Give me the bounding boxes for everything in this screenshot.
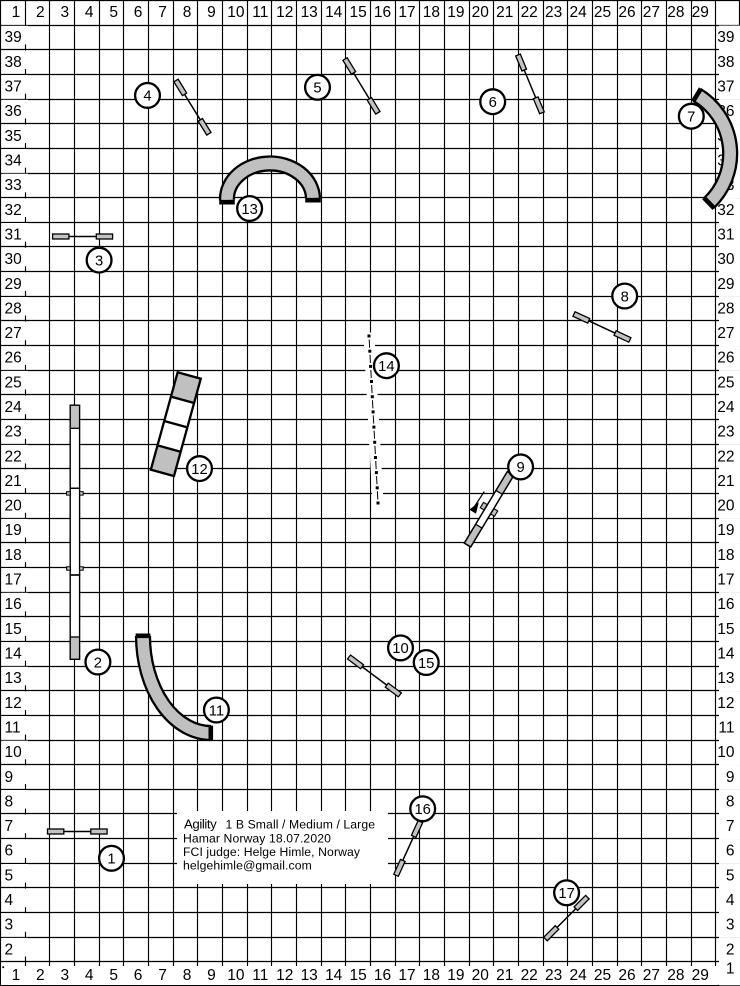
svg-text:22: 22 <box>521 967 538 984</box>
svg-text:20: 20 <box>472 4 490 21</box>
svg-text:18: 18 <box>717 547 734 564</box>
svg-text:23: 23 <box>545 967 562 984</box>
svg-text:29: 29 <box>692 967 709 984</box>
svg-text:21: 21 <box>496 967 513 984</box>
svg-text:39: 39 <box>5 29 22 46</box>
svg-text:10: 10 <box>227 4 245 21</box>
svg-text:16: 16 <box>414 802 430 818</box>
svg-text:27: 27 <box>643 967 660 984</box>
svg-text:10: 10 <box>392 641 408 657</box>
svg-text:7: 7 <box>5 818 14 835</box>
svg-text:38: 38 <box>717 54 734 71</box>
svg-text:1 B Small / Medium / Large: 1 B Small / Medium / Large <box>226 818 376 832</box>
svg-text:31: 31 <box>5 226 22 243</box>
svg-text:17: 17 <box>558 886 574 902</box>
svg-text:20: 20 <box>472 967 490 984</box>
svg-text:28: 28 <box>667 967 684 984</box>
svg-text:29: 29 <box>5 276 22 293</box>
svg-text:11: 11 <box>718 719 734 736</box>
svg-text:13: 13 <box>301 967 318 984</box>
svg-text:22: 22 <box>5 448 22 465</box>
svg-text:26: 26 <box>618 967 635 984</box>
svg-text:9: 9 <box>516 460 524 476</box>
svg-text:1: 1 <box>12 967 21 984</box>
svg-text:34: 34 <box>5 153 23 170</box>
svg-text:19: 19 <box>5 522 22 539</box>
svg-text:12: 12 <box>5 695 22 712</box>
svg-text:6: 6 <box>726 843 735 860</box>
svg-text:27: 27 <box>5 325 22 342</box>
svg-text:12: 12 <box>276 4 293 21</box>
svg-text:5: 5 <box>5 867 14 884</box>
svg-text:37: 37 <box>5 79 22 96</box>
svg-text:4: 4 <box>726 892 735 909</box>
svg-text:17: 17 <box>5 572 22 589</box>
svg-text:14: 14 <box>717 646 735 663</box>
svg-text:24: 24 <box>569 4 587 21</box>
svg-text:32: 32 <box>717 202 734 219</box>
svg-text:30: 30 <box>717 251 735 268</box>
svg-text:2: 2 <box>36 967 45 984</box>
svg-text:30: 30 <box>5 251 23 268</box>
svg-text:1: 1 <box>107 852 115 868</box>
svg-text:29: 29 <box>717 276 734 293</box>
svg-text:Hamar Norway 18.07.2020: Hamar Norway 18.07.2020 <box>183 832 331 846</box>
svg-text:15: 15 <box>349 967 366 984</box>
svg-text:FCI judge: Helge Himle, Norway: FCI judge: Helge Himle, Norway <box>183 845 361 859</box>
svg-text:3: 3 <box>95 253 103 269</box>
svg-text:28: 28 <box>667 4 684 21</box>
svg-text:2: 2 <box>36 4 45 21</box>
svg-text:8: 8 <box>726 793 735 810</box>
svg-text:13: 13 <box>5 670 22 687</box>
svg-text:9: 9 <box>5 769 14 786</box>
svg-text:4: 4 <box>85 967 94 984</box>
svg-text:9: 9 <box>207 4 216 21</box>
svg-text:14: 14 <box>325 4 343 21</box>
svg-text:8: 8 <box>621 289 629 305</box>
svg-text:39: 39 <box>717 29 734 46</box>
svg-text:22: 22 <box>521 4 538 21</box>
svg-text:24: 24 <box>5 399 23 416</box>
svg-text:32: 32 <box>5 202 22 219</box>
svg-text:11: 11 <box>252 967 268 984</box>
svg-text:17: 17 <box>398 967 415 984</box>
svg-text:23: 23 <box>717 424 734 441</box>
svg-text:14: 14 <box>325 967 343 984</box>
svg-text:11: 11 <box>252 4 268 21</box>
svg-text:17: 17 <box>398 4 415 21</box>
svg-text:16: 16 <box>374 967 391 984</box>
svg-text:14: 14 <box>5 646 23 663</box>
svg-text:21: 21 <box>5 473 22 490</box>
svg-text:12: 12 <box>276 967 293 984</box>
svg-text:20: 20 <box>5 498 23 515</box>
svg-text:3: 3 <box>726 917 735 934</box>
svg-text:15: 15 <box>349 4 366 21</box>
svg-text:9: 9 <box>726 769 735 786</box>
svg-text:7: 7 <box>158 967 167 984</box>
svg-text:4: 4 <box>85 4 94 21</box>
svg-text:16: 16 <box>5 596 22 613</box>
svg-text:3: 3 <box>60 967 69 984</box>
svg-text:1: 1 <box>12 4 21 21</box>
svg-text:12: 12 <box>717 695 734 712</box>
svg-text:15: 15 <box>717 621 734 638</box>
svg-text:19: 19 <box>447 967 464 984</box>
svg-text:10: 10 <box>227 967 245 984</box>
svg-text:7: 7 <box>687 110 695 126</box>
svg-text:12: 12 <box>191 462 207 478</box>
svg-text:11: 11 <box>209 703 224 719</box>
svg-text:helgehimle@gmail.com: helgehimle@gmail.com <box>183 859 312 873</box>
svg-text:6: 6 <box>489 95 497 111</box>
svg-text:1: 1 <box>726 961 735 978</box>
svg-text:25: 25 <box>594 4 611 21</box>
svg-text:16: 16 <box>717 596 734 613</box>
svg-text:23: 23 <box>545 4 562 21</box>
svg-text:17: 17 <box>717 572 734 589</box>
svg-text:25: 25 <box>5 374 22 391</box>
svg-text:27: 27 <box>643 4 660 21</box>
svg-text:21: 21 <box>496 4 513 21</box>
svg-text:8: 8 <box>183 4 192 21</box>
svg-text:2: 2 <box>726 941 735 958</box>
svg-text:5: 5 <box>313 81 321 97</box>
svg-text:15: 15 <box>418 656 434 672</box>
svg-text:29: 29 <box>692 4 709 21</box>
svg-text:7: 7 <box>726 818 735 835</box>
svg-text:5: 5 <box>726 867 735 884</box>
svg-text:4: 4 <box>143 89 151 105</box>
svg-text:6: 6 <box>134 4 143 21</box>
svg-text:35: 35 <box>5 128 22 145</box>
svg-text:16: 16 <box>374 4 391 21</box>
svg-text:10: 10 <box>717 744 735 761</box>
svg-text:28: 28 <box>717 300 734 317</box>
svg-text:6: 6 <box>5 843 14 860</box>
svg-text:24: 24 <box>717 399 735 416</box>
svg-text:25: 25 <box>717 374 734 391</box>
svg-text:24: 24 <box>569 967 587 984</box>
svg-text:13: 13 <box>301 4 318 21</box>
svg-text:2: 2 <box>94 655 102 671</box>
svg-text:22: 22 <box>717 448 734 465</box>
svg-text:26: 26 <box>717 350 734 367</box>
svg-text:19: 19 <box>717 522 734 539</box>
svg-text:10: 10 <box>5 744 23 761</box>
svg-text:3: 3 <box>60 4 69 21</box>
svg-text:8: 8 <box>5 793 14 810</box>
svg-text:13: 13 <box>241 202 257 218</box>
svg-text:18: 18 <box>423 4 440 21</box>
svg-text:31: 31 <box>717 226 734 243</box>
svg-text:6: 6 <box>134 967 143 984</box>
svg-text:5: 5 <box>109 967 118 984</box>
svg-text:15: 15 <box>5 621 22 638</box>
svg-text:Agility: Agility <box>184 817 217 832</box>
svg-text:5: 5 <box>109 4 118 21</box>
svg-text:26: 26 <box>5 350 22 367</box>
svg-text:19: 19 <box>447 4 464 21</box>
svg-text:27: 27 <box>717 325 734 342</box>
svg-text:14: 14 <box>378 359 394 375</box>
svg-text:21: 21 <box>717 473 734 490</box>
svg-text:25: 25 <box>594 967 611 984</box>
svg-text:4: 4 <box>5 892 14 909</box>
svg-text:37: 37 <box>717 79 734 96</box>
svg-text:38: 38 <box>5 54 22 71</box>
svg-text:23: 23 <box>5 424 22 441</box>
svg-text:20: 20 <box>717 498 735 515</box>
svg-text:9: 9 <box>207 967 216 984</box>
svg-text:26: 26 <box>618 4 635 21</box>
svg-text:33: 33 <box>5 177 22 194</box>
svg-text:36: 36 <box>5 103 22 120</box>
svg-text:18: 18 <box>5 547 22 564</box>
svg-text:2: 2 <box>5 941 14 958</box>
svg-text:28: 28 <box>5 300 22 317</box>
svg-text:3: 3 <box>5 917 14 934</box>
svg-text:18: 18 <box>423 967 440 984</box>
svg-text:7: 7 <box>158 4 167 21</box>
svg-text:13: 13 <box>717 670 734 687</box>
svg-text:8: 8 <box>183 967 192 984</box>
svg-text:11: 11 <box>5 719 21 736</box>
